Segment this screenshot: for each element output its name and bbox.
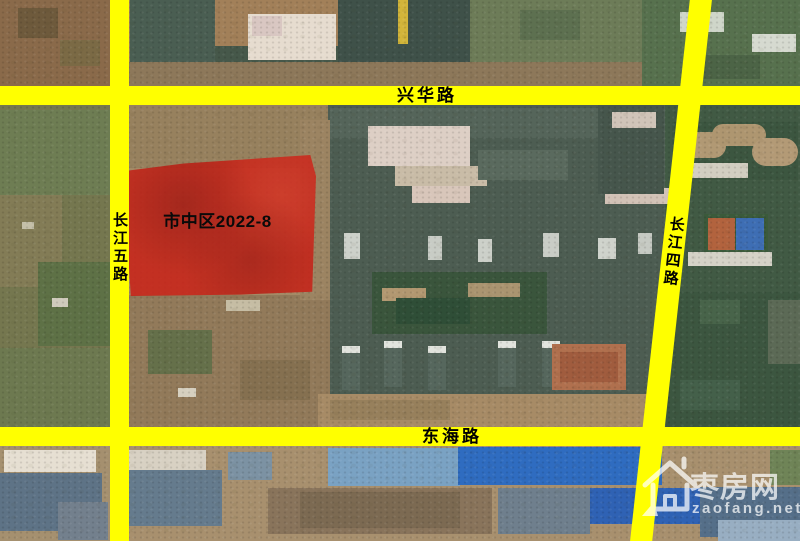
watermark: 枣房网 zaofang.net <box>640 450 798 536</box>
terrain-patch <box>498 341 516 348</box>
terrain-patch <box>428 236 442 260</box>
terrain-patch <box>4 450 96 472</box>
terrain-patch <box>478 150 568 180</box>
terrain-patch <box>384 343 402 387</box>
terrain-patch <box>148 330 212 374</box>
terrain-patch <box>22 222 34 229</box>
terrain-patch <box>458 447 662 485</box>
road-changjiang-5: 长江五路 <box>110 0 129 541</box>
terrain-patch <box>638 233 652 254</box>
terrain-patch <box>700 300 740 324</box>
terrain-patch <box>328 448 460 486</box>
terrain-patch <box>344 233 360 259</box>
road-label-xinghua: 兴华路 <box>397 86 457 105</box>
terrain-patch <box>118 470 222 526</box>
terrain-patch <box>58 502 108 540</box>
terrain-patch <box>498 343 516 387</box>
terrain-patch <box>342 348 360 390</box>
terrain-patch <box>612 112 656 128</box>
terrain-patch <box>330 400 450 420</box>
terrain-patch <box>428 348 446 390</box>
terrain-patch <box>752 34 796 52</box>
terrain-patch <box>18 8 58 38</box>
terrain-patch <box>412 186 470 203</box>
terrain-patch <box>226 300 260 311</box>
terrain-patch <box>342 346 360 353</box>
terrain-patch <box>38 262 112 346</box>
terrain-patch <box>700 55 760 79</box>
terrain-patch <box>300 492 460 528</box>
parcel-satellite-map-image: 市中区2022-8 兴华路 东海路 长江五路 长江四路 枣房网 zaofang.… <box>0 0 800 541</box>
terrain-patch <box>384 341 402 348</box>
terrain-patch <box>468 283 520 297</box>
road-label-donghai: 东海路 <box>422 427 482 446</box>
terrain-patch <box>428 346 446 353</box>
parcel-label: 市中区2022-8 <box>127 155 308 284</box>
terrain-patch <box>398 0 408 44</box>
terrain-patch <box>252 16 282 36</box>
terrain-patch <box>690 163 748 178</box>
terrain-patch <box>228 452 272 480</box>
terrain-patch <box>736 218 764 250</box>
terrain-patch <box>768 300 800 364</box>
parcel-highlight-2022-8: 市中区2022-8 <box>127 155 316 296</box>
terrain-patch <box>52 298 68 307</box>
terrain-patch <box>478 239 492 262</box>
terrain-patch <box>368 126 470 166</box>
terrain-patch <box>752 138 798 166</box>
terrain-patch <box>520 10 580 40</box>
terrain-patch <box>240 360 310 400</box>
terrain-patch <box>543 233 559 257</box>
terrain-patch <box>396 298 470 324</box>
terrain-patch <box>60 40 100 66</box>
terrain-patch <box>0 110 112 195</box>
terrain-patch <box>130 0 215 62</box>
watermark-site-url: zaofang.net <box>692 500 800 517</box>
terrain-patch <box>598 238 616 259</box>
terrain-patch <box>688 252 772 266</box>
road-label-changjiang-5: 长江五路 <box>109 212 130 284</box>
terrain-patch <box>560 352 618 382</box>
terrain-patch <box>178 388 196 397</box>
terrain-patch <box>708 218 735 250</box>
terrain-patch <box>498 488 590 534</box>
terrain-patch <box>120 62 642 86</box>
terrain-patch <box>680 380 740 410</box>
terrain-patch <box>395 166 487 186</box>
